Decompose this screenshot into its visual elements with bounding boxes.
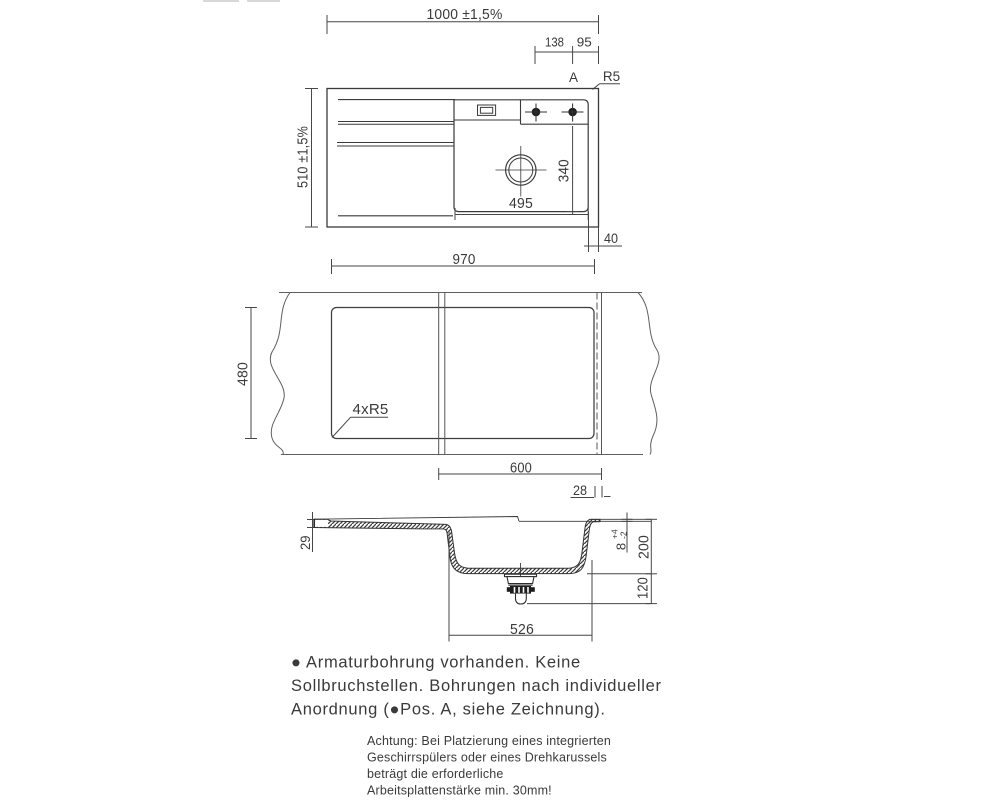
svg-text:40: 40 (604, 231, 618, 246)
svg-text:beträgt die erforderliche: beträgt die erforderliche (367, 767, 504, 781)
svg-text:-2: -2 (619, 531, 629, 539)
svg-text:Arbeitsplattenstärke min. 30mm: Arbeitsplattenstärke min. 30mm! (367, 784, 552, 798)
svg-text:● Armaturbohrung vorhanden. Ke: ● Armaturbohrung vorhanden. Keine (291, 654, 581, 672)
svg-text:Geschirrspülers oder eines Dre: Geschirrspülers oder eines Drehkarussels (367, 751, 607, 765)
svg-text:R5: R5 (603, 69, 620, 84)
svg-text:526: 526 (510, 622, 534, 638)
svg-text:200: 200 (637, 535, 653, 559)
svg-text:Anordnung (●Pos. A, siehe Zeic: Anordnung (●Pos. A, siehe Zeichnung). (291, 701, 606, 719)
svg-text:8: 8 (614, 543, 629, 550)
svg-text:495: 495 (509, 196, 533, 212)
svg-text:29: 29 (297, 535, 313, 550)
svg-text:Achtung: Bei Platzierung eines: Achtung: Bei Platzierung eines integrier… (367, 734, 611, 748)
svg-text:1000 ±1,5%: 1000 ±1,5% (427, 7, 503, 23)
svg-text:600: 600 (510, 461, 532, 477)
svg-text:970: 970 (453, 252, 476, 268)
svg-text:138: 138 (545, 36, 564, 50)
svg-text:340: 340 (556, 159, 572, 182)
svg-text:4xR5: 4xR5 (353, 402, 389, 418)
svg-text:28: 28 (573, 482, 587, 498)
svg-text:480: 480 (235, 362, 251, 386)
svg-text:510 ±1,5%: 510 ±1,5% (295, 126, 311, 188)
svg-text:95: 95 (577, 36, 592, 50)
svg-text:A: A (569, 70, 578, 85)
svg-text:120: 120 (636, 577, 652, 599)
svg-text:Sollbruchstellen. Bohrungen na: Sollbruchstellen. Bohrungen nach individ… (291, 677, 662, 695)
